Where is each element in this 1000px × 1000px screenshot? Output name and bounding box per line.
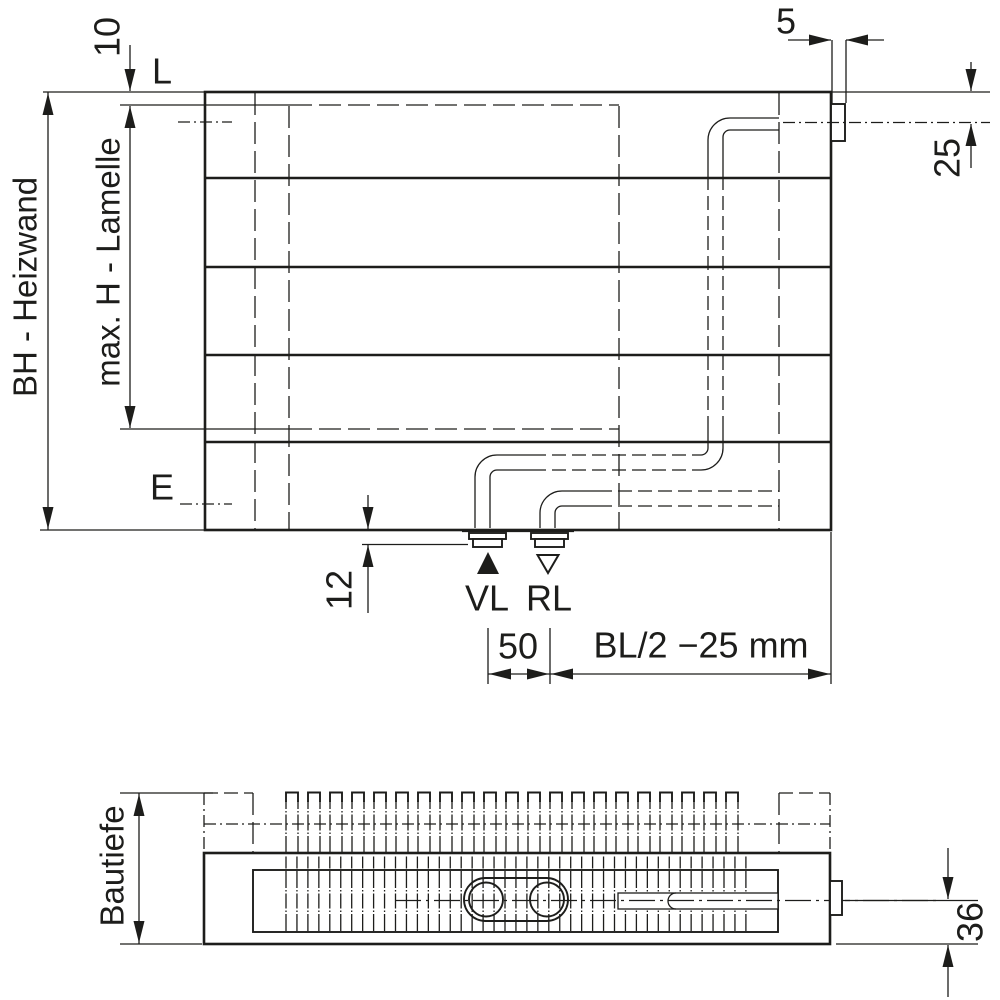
dim-label-bautiefe: Bautiefe [94, 805, 131, 926]
radiator-drawing: 10 L BH - Heizwand max. H - Lamelle E 5 … [0, 0, 1000, 1000]
dim-label-36: 36 [950, 902, 991, 942]
dim-label-12: 12 [319, 570, 360, 610]
arrowhead [527, 669, 549, 680]
arrowhead [846, 35, 868, 46]
arrowhead [363, 545, 374, 567]
dim-label-5: 5 [776, 1, 796, 42]
arrowhead [134, 921, 145, 943]
dimension-5 [788, 35, 884, 46]
supply-pipe [475, 118, 779, 528]
arrowhead [363, 507, 374, 529]
arrowhead [808, 669, 830, 680]
dim-label-bh: BH - Heizwand [7, 177, 44, 397]
dim-label-bl: BL/2 −25 mm [593, 625, 808, 666]
arrowhead [125, 106, 136, 128]
arrowhead [125, 406, 136, 428]
arrowhead [134, 794, 145, 816]
label-e: E [150, 467, 174, 508]
arrowhead [489, 669, 511, 680]
vl-flow-arrow-icon [477, 552, 499, 574]
fin-comb [286, 793, 738, 854]
arrowhead [43, 93, 54, 115]
dim-label-25: 25 [927, 138, 968, 178]
dim-label-50: 50 [498, 626, 538, 667]
section-wall-stub [830, 881, 842, 915]
front-view: 10 L BH - Heizwand max. H - Lamelle E 5 … [7, 1, 991, 685]
return-pipe [540, 491, 779, 528]
arrowhead [551, 669, 573, 680]
arrowhead [43, 507, 54, 529]
bottom-connections [462, 532, 574, 575]
label-l: L [152, 51, 172, 92]
arrowhead [966, 69, 977, 91]
arrowhead [943, 877, 954, 899]
arrowhead [809, 35, 831, 46]
label-vl: VL [465, 578, 509, 619]
rl-flow-arrow-icon [538, 555, 559, 573]
dimension-12 [362, 495, 468, 613]
arrowhead [125, 69, 136, 91]
section-view: Bautiefe 36 [94, 793, 991, 998]
dim-label-max-h: max. H - Lamelle [90, 137, 127, 386]
arrowhead [943, 945, 954, 967]
hidden-vertical-lines [255, 93, 779, 529]
dimension-bautiefe [120, 793, 213, 944]
label-rl: RL [526, 578, 572, 619]
wall-connection-stub [831, 40, 846, 141]
radiator-body-outline [205, 92, 831, 530]
technical-drawing-page: 10 L BH - Heizwand max. H - Lamelle E 5 … [0, 0, 1000, 1000]
dim-label-10: 10 [87, 17, 128, 57]
